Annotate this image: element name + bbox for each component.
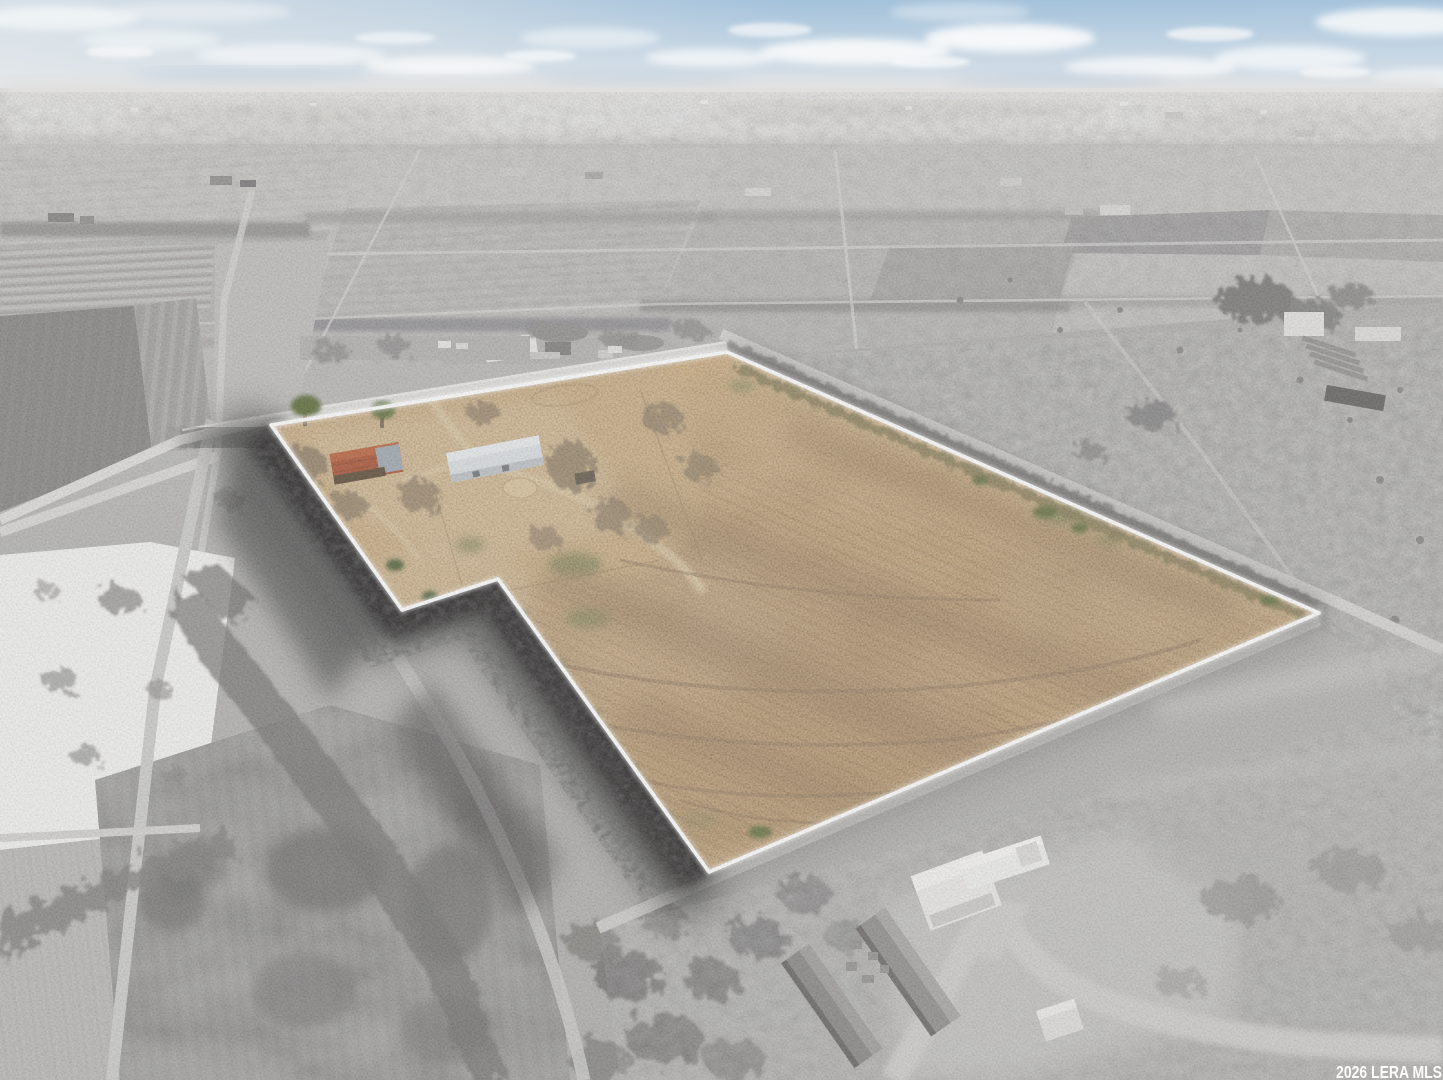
svg-text:2026 LERA MLS: 2026 LERA MLS	[1336, 1064, 1442, 1080]
